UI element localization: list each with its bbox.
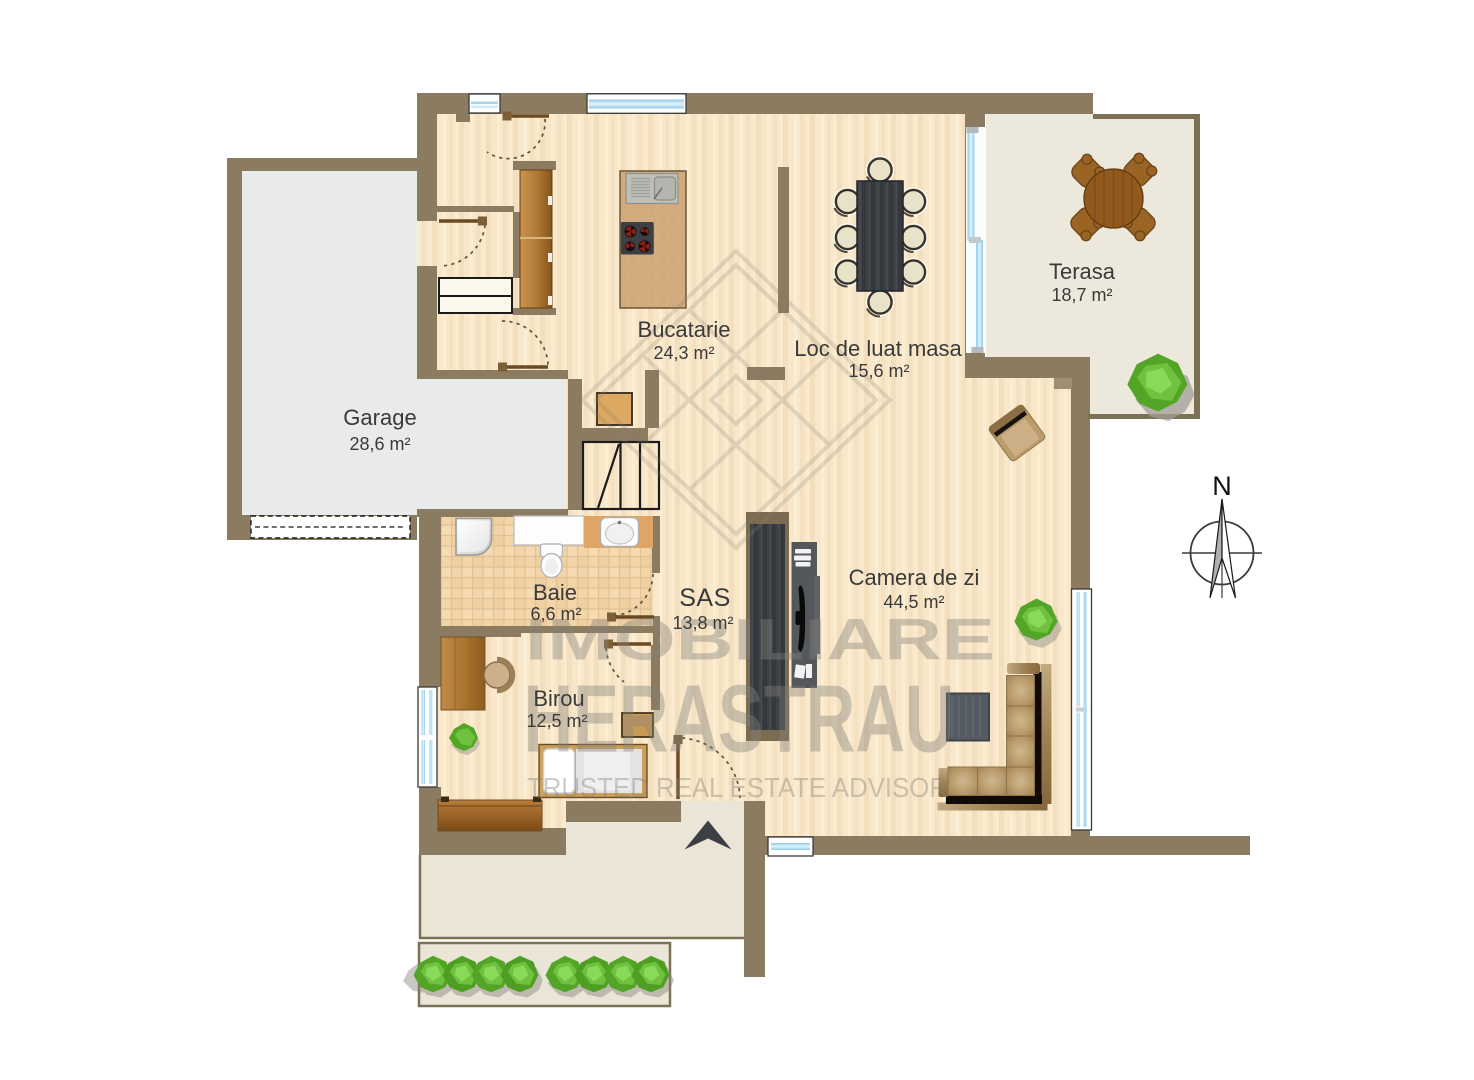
svg-text:SAS: SAS [679,584,731,612]
svg-text:Baie: Baie [533,580,577,605]
svg-text:Bucatarie: Bucatarie [638,317,731,342]
svg-text:13,8 m²: 13,8 m² [672,613,733,633]
svg-text:Garage: Garage [343,405,416,430]
svg-text:18,7 m²: 18,7 m² [1051,285,1112,305]
svg-text:TRUSTED REAL ESTATE ADVISOR: TRUSTED REAL ESTATE ADVISOR [527,772,948,803]
svg-text:24,3 m²: 24,3 m² [653,343,714,363]
svg-text:44,5 m²: 44,5 m² [883,592,944,612]
svg-text:Birou: Birou [533,686,584,711]
svg-text:HERASTRAU: HERASTRAU [524,666,955,773]
svg-text:28,6 m²: 28,6 m² [349,434,410,454]
svg-text:12,5 m²: 12,5 m² [526,711,587,731]
svg-text:N: N [1212,471,1232,501]
svg-text:6,6 m²: 6,6 m² [530,604,581,624]
svg-text:Loc de luat masa: Loc de luat masa [794,336,962,361]
svg-text:Terasa: Terasa [1049,259,1116,284]
svg-text:IMOBILIARE: IMOBILIARE [525,608,995,673]
svg-text:15,6 m²: 15,6 m² [848,361,909,381]
svg-text:Camera de zi: Camera de zi [849,565,980,590]
